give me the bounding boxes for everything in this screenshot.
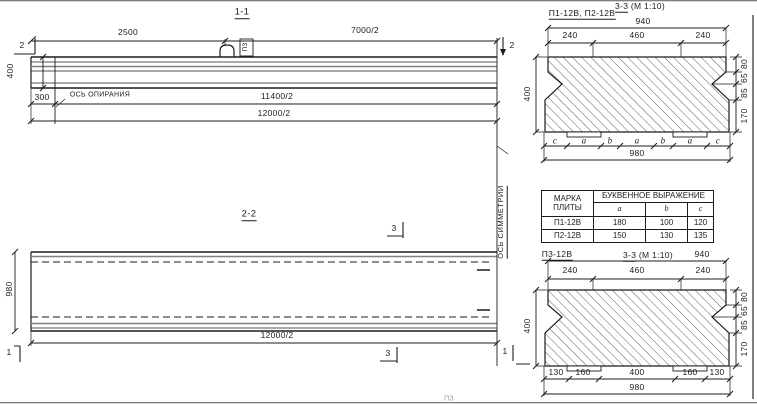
table-header-group: БУКВЕННОЕ ВЫРАЖЕНИЕ: [594, 191, 714, 203]
title-number: 3-3: [623, 250, 636, 262]
section-3-3-bottom-title: 3-3 (М 1:10): [623, 251, 673, 260]
plate-dimension-table: МАРКА ПЛИТЫ БУКВЕННОЕ ВЫРАЖЕНИЕ a b c П1…: [541, 190, 714, 243]
cell-a-p1: 180: [594, 217, 646, 230]
blueprint-sheet: 1-1 2500 7000/2 2 2 400 300 ОСЬ ОПИРАНИЯ…: [0, 0, 757, 404]
dim-460-top: 460: [629, 31, 644, 40]
dim-12000-label-s11: 12000/2: [258, 109, 291, 118]
letter-dim-a3: a: [688, 137, 693, 146]
dim-160-right: 160: [682, 368, 697, 377]
dim-80-bottom: 80: [740, 292, 749, 302]
table-header-b: b: [646, 203, 688, 217]
dim-240-left-top: 240: [562, 31, 577, 40]
section-1-1-beam: [31, 39, 497, 88]
dim-980-label-s22: 980: [5, 281, 14, 296]
cross-section-p1-p2: [545, 57, 729, 137]
cell-c-p2: 135: [688, 230, 714, 243]
symmetry-axis-label: ОСЬ СИММЕТРИИ: [497, 185, 508, 258]
dim-460-bottom: 460: [629, 266, 644, 275]
dim-80-top: 80: [740, 59, 749, 69]
table-row: П2-12В 150 130 135: [542, 230, 714, 243]
cell-a-p2: 150: [594, 230, 646, 243]
cut-mark-3-top: 3: [391, 224, 396, 233]
dim-940-bottom-section: 940: [694, 250, 709, 259]
cut-arrowhead: [500, 49, 506, 56]
dim-11400-label: 11400/2: [261, 92, 293, 101]
title-scale: (М 1:10): [631, 1, 665, 11]
dim-940-top: 940: [635, 17, 650, 26]
dim-65-bottom: 65: [740, 306, 749, 316]
header-plity: ПЛИТЫ: [553, 203, 582, 212]
section-2-2-title: 2-2: [242, 209, 257, 221]
dim-240-right-top: 240: [695, 31, 710, 40]
dim-170-bottom: 170: [740, 341, 749, 356]
table-header-c: c: [688, 203, 714, 217]
dim-130-left: 130: [548, 368, 563, 377]
dim-7000-label: 7000/2: [351, 26, 379, 35]
plate-mark-p3-label: П3-12В: [542, 250, 573, 261]
dim-170-top: 170: [740, 108, 749, 123]
dim-130-right: 130: [709, 368, 724, 377]
cell-mark-p1: П1-12В: [542, 217, 594, 230]
header-marka: МАРКА: [554, 194, 581, 203]
section-cut-marks: [14, 36, 530, 364]
lifting-loop: [220, 45, 234, 57]
letter-dim-a1: a: [582, 137, 587, 146]
dim-85-top: 85: [740, 88, 749, 98]
title-number: 3-3: [615, 1, 628, 13]
dim-400-left-bottom: 400: [523, 318, 532, 333]
cut-mark-1-left: 1: [6, 348, 11, 357]
dim-300-label: 300: [34, 93, 49, 102]
lifting-loop-label: П3: [243, 43, 250, 52]
table-header-a: a: [594, 203, 646, 217]
cell-mark-p2: П2-12В: [542, 230, 594, 243]
dim-160-left: 160: [575, 368, 590, 377]
letter-dim-b2: b: [661, 137, 666, 146]
letter-dim-c1: c: [553, 137, 557, 146]
table-header-mark: МАРКА ПЛИТЫ: [542, 191, 594, 217]
section-1-1-title: 1-1: [235, 7, 250, 19]
table-row: П1-12В 180 100 120: [542, 217, 714, 230]
section-2-2-plan: [31, 252, 497, 331]
title-scale: (М 1:10): [639, 250, 673, 260]
dim-400-label-s11: 400: [6, 63, 15, 78]
dim-400-bottom: 400: [629, 368, 644, 377]
cross-section-p3: [545, 290, 729, 371]
cut-mark-1-right: 1: [502, 347, 507, 356]
dim-240-left-bottom: 240: [562, 266, 577, 275]
plate-marks-label: П1-12В, П2-12В: [549, 9, 616, 20]
bearing-axis-label: ОСЬ ОПИРАНИЯ: [70, 92, 130, 99]
dim-980-bottom-top-section: 980: [629, 149, 644, 158]
dim-2500-label: 2500: [118, 28, 138, 37]
cell-c-p1: 120: [688, 217, 714, 230]
dim-400-left-top: 400: [523, 86, 532, 101]
cut-mark-3-bottom: 3: [385, 349, 390, 358]
cut-mark-2-right: 2: [509, 41, 514, 50]
cell-b-p1: 100: [646, 217, 688, 230]
dim-980-bottom-section-total: 980: [629, 383, 644, 392]
dim-65-top: 65: [740, 73, 749, 83]
section-3-3-top-title: 3-3 (М 1:10): [615, 2, 665, 11]
letter-dim-c2: c: [716, 137, 720, 146]
dim-240-right-bottom: 240: [695, 266, 710, 275]
letter-dim-a2: a: [635, 137, 640, 146]
dim-85-bottom: 85: [740, 320, 749, 330]
cut-mark-2-left: 2: [19, 41, 24, 50]
cell-b-p2: 130: [646, 230, 688, 243]
letter-dim-b1: b: [608, 137, 613, 146]
stray-partial-text: ПЗ: [444, 396, 454, 403]
dim-12000-label-s22: 12000/2: [261, 331, 294, 340]
